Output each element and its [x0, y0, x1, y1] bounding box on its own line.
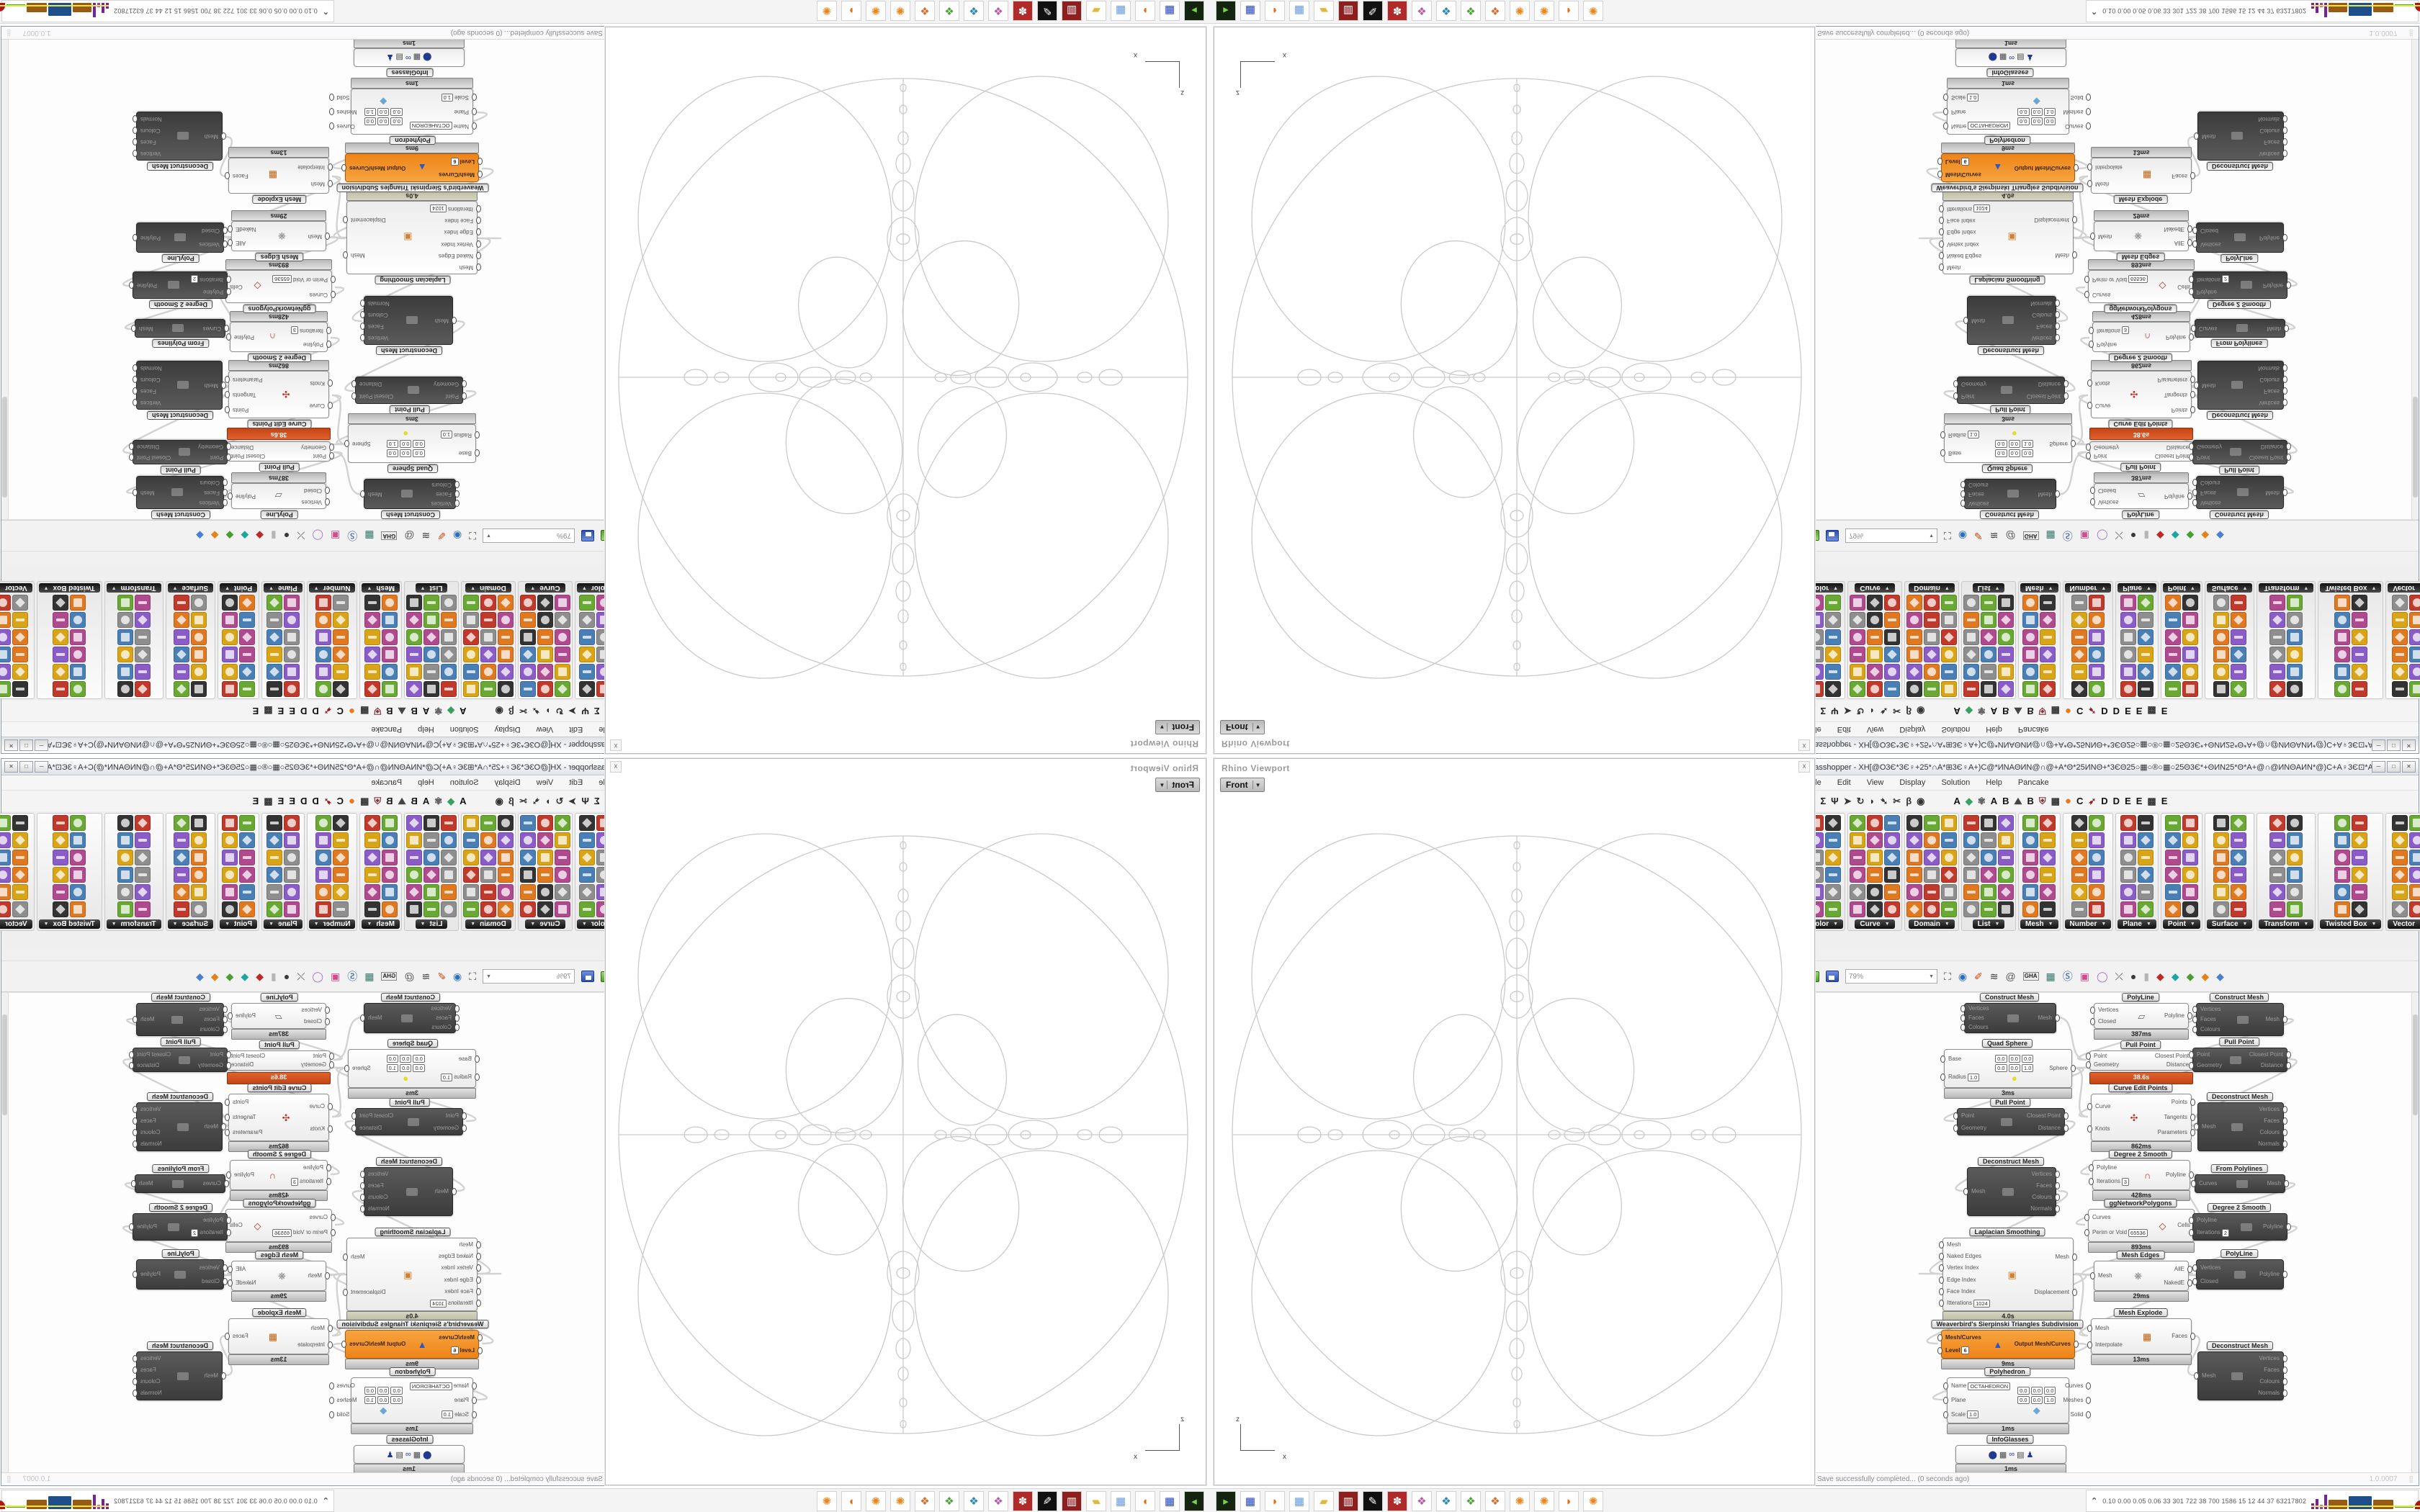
value-box[interactable]: 0.0: [2017, 118, 2029, 126]
input-port[interactable]: [325, 1007, 330, 1014]
component-icon[interactable]: [382, 867, 398, 883]
component-icon[interactable]: [2352, 595, 2367, 611]
component-icon[interactable]: [333, 884, 349, 900]
node-title[interactable]: From Polylines: [2211, 339, 2268, 348]
component-icon[interactable]: [2409, 647, 2420, 662]
ribbon-tab-icon[interactable]: B: [2002, 706, 2009, 716]
graph-node-a1[interactable]: VerticesFacesColoursMesh: [1964, 479, 2056, 509]
component-icon[interactable]: [423, 664, 439, 680]
panel-label-domain[interactable]: Domain▼: [465, 583, 511, 593]
gem-blue-icon[interactable]: ◆: [2216, 531, 2224, 541]
node-title[interactable]: Curve Edit Points: [2108, 1084, 2172, 1092]
component-icon[interactable]: [423, 850, 439, 865]
zoom-select[interactable]: 79% ▼: [1845, 528, 1937, 543]
graph-node-c5[interactable]: PolylineIterations2Polyline: [133, 1213, 228, 1241]
output-port-row[interactable]: Points: [233, 1099, 248, 1106]
input-port[interactable]: [1937, 1347, 1942, 1354]
node-title[interactable]: Laplacian Smoothing: [375, 1228, 450, 1236]
input-port[interactable]: [1939, 1277, 1944, 1284]
component-icon[interactable]: [441, 832, 457, 848]
input-port[interactable]: [226, 1062, 231, 1069]
output-port[interactable]: [2190, 406, 2195, 413]
output-port-row[interactable]: Mesh: [2055, 1254, 2069, 1261]
component-icon[interactable]: [2182, 664, 2198, 680]
input-port[interactable]: [326, 341, 331, 348]
component-icon[interactable]: [1884, 681, 1900, 697]
blender-icon[interactable]: ✺: [1510, 1, 1530, 21]
input-port[interactable]: [2189, 276, 2194, 283]
input-port-row[interactable]: Point: [1961, 1112, 1986, 1120]
node-title[interactable]: Curve Edit Points: [2108, 420, 2172, 428]
input-port-row[interactable]: Geometry: [2197, 1062, 2222, 1069]
minimize-button[interactable]: ─: [2372, 739, 2385, 751]
input-port[interactable]: [2189, 454, 2194, 462]
input-port-row[interactable]: Closed: [2200, 1278, 2220, 1285]
output-port[interactable]: [2187, 492, 2192, 500]
component-icon[interactable]: [239, 815, 255, 831]
component-icon[interactable]: [2287, 595, 2303, 611]
component-icon[interactable]: [480, 867, 496, 883]
node-title[interactable]: Degree 2 Smooth: [248, 354, 311, 362]
panel-label-domain[interactable]: Domain▼: [1909, 583, 1955, 593]
component-icon[interactable]: [555, 629, 570, 645]
input-port-row[interactable]: Point: [198, 454, 223, 462]
component-icon[interactable]: [284, 595, 300, 611]
component-icon[interactable]: [1825, 901, 1841, 917]
component-icon[interactable]: [266, 595, 282, 611]
output-port[interactable]: [329, 94, 334, 101]
component-icon[interactable]: [423, 647, 439, 662]
output-port[interactable]: [2282, 1140, 2287, 1148]
input-port[interactable]: [2089, 1178, 2094, 1185]
component-icon[interactable]: [1825, 595, 1841, 611]
component-icon[interactable]: [2089, 647, 2105, 662]
input-port-row[interactable]: Radius1.0: [441, 431, 472, 438]
graph-node-a1[interactable]: VerticesFacesColoursMesh: [364, 479, 456, 509]
output-port-row[interactable]: Normals: [2030, 300, 2052, 307]
component-icon[interactable]: [2231, 595, 2246, 611]
component-icon[interactable]: [1963, 647, 1979, 662]
ribbon-tab-icon[interactable]: ●: [349, 706, 355, 716]
badge-icon[interactable]: ✽: [1013, 1, 1033, 21]
component-icon[interactable]: [1867, 815, 1883, 831]
value-box[interactable]: 3: [291, 326, 298, 334]
input-port[interactable]: [221, 1123, 226, 1130]
output-port-row[interactable]: Distance: [359, 1125, 382, 1132]
input-port-row[interactable]: Geometry: [1961, 381, 1986, 388]
input-port[interactable]: [328, 164, 333, 171]
component-icon[interactable]: [2165, 681, 2181, 697]
output-port[interactable]: [2190, 1114, 2195, 1121]
component-icon[interactable]: [1906, 901, 1922, 917]
output-port-row[interactable]: Colours: [140, 376, 161, 383]
value-box[interactable]: 65536: [272, 275, 292, 283]
component-icon[interactable]: [2120, 867, 2136, 883]
input-port-row[interactable]: Curve: [310, 402, 325, 410]
node-title[interactable]: Quad Sphere: [387, 464, 438, 473]
component-icon[interactable]: [1867, 612, 1883, 628]
component-icon[interactable]: [315, 664, 331, 680]
ribbon-tab-icon[interactable]: ◆: [447, 796, 454, 806]
component-icon[interactable]: [2231, 884, 2246, 900]
output-port-row[interactable]: Points: [2172, 406, 2187, 413]
node-title[interactable]: ggNetworkPolygons: [243, 305, 315, 313]
component-icon[interactable]: [1981, 629, 1996, 645]
ribbon-tab-icon[interactable]: ↻: [555, 796, 563, 806]
node-title[interactable]: PolyLine: [2122, 993, 2159, 1002]
node-title[interactable]: From Polylines: [153, 339, 210, 348]
component-icon[interactable]: [1941, 884, 1957, 900]
ribbon-tab-icon[interactable]: ▦: [360, 706, 369, 716]
component-icon[interactable]: [2287, 901, 2303, 917]
input-port[interactable]: [2087, 1341, 2092, 1349]
component-icon[interactable]: [364, 681, 380, 697]
component-icon[interactable]: [1884, 850, 1900, 865]
graph-node-a2[interactable]: BaseRadius1.00.00.00.00.00.01.0●Sphere: [1944, 1049, 2072, 1088]
value-box[interactable]: 1024: [1973, 1300, 1990, 1308]
input-port[interactable]: [328, 1341, 333, 1349]
input-port-row[interactable]: Polyline: [2197, 288, 2229, 295]
output-port-row[interactable]: Distance: [231, 1061, 254, 1068]
paint-palette-icon[interactable]: ❖: [939, 1491, 959, 1511]
node-title[interactable]: Deconstruct Mesh: [2207, 162, 2273, 171]
output-port[interactable]: [133, 1129, 138, 1136]
component-icon[interactable]: [1906, 612, 1922, 628]
blender-icon[interactable]: ✺: [1583, 1491, 1603, 1511]
ribbon-tab-icon[interactable]: Ψ: [581, 706, 589, 716]
input-port[interactable]: [2192, 479, 2197, 486]
output-port[interactable]: [351, 381, 357, 388]
component-icon[interactable]: [2089, 595, 2105, 611]
value-box[interactable]: 6: [451, 158, 458, 166]
input-port[interactable]: [329, 444, 334, 451]
component-icon[interactable]: [2231, 629, 2246, 645]
graph-node-c5[interactable]: PolylineIterations2Polyline: [2192, 271, 2287, 299]
balloon-icon[interactable]: ◯: [312, 971, 323, 981]
zoom-select[interactable]: 79% ▼: [483, 528, 575, 543]
component-icon[interactable]: [222, 884, 238, 900]
component-icon[interactable]: [1998, 901, 2014, 917]
component-icon[interactable]: [441, 595, 457, 611]
value-box[interactable]: 0.0: [1995, 450, 2007, 458]
value-box[interactable]: 0.0: [2022, 1055, 2033, 1063]
ribbon-tab-icon[interactable]: ◆: [447, 706, 454, 716]
input-port[interactable]: [328, 380, 333, 387]
output-port[interactable]: [329, 1382, 334, 1390]
component-icon[interactable]: [333, 832, 349, 848]
ribbon-tab-icon[interactable]: ⛨: [374, 706, 381, 716]
cards-icon[interactable]: ▥: [1338, 1491, 1358, 1511]
component-icon[interactable]: [1825, 832, 1841, 848]
search-s-icon[interactable]: Ⓢ: [347, 971, 357, 981]
output-port[interactable]: [133, 1271, 138, 1278]
input-port[interactable]: [1939, 264, 1944, 271]
ribbon-tab-icon[interactable]: B: [2027, 796, 2033, 806]
input-port-row[interactable]: Face Index: [1947, 217, 1990, 224]
menu-item-pancake[interactable]: Pancake: [371, 725, 402, 734]
component-icon[interactable]: [333, 850, 349, 865]
component-icon[interactable]: [2089, 629, 2105, 645]
component-icon[interactable]: [2409, 629, 2420, 645]
output-port-row[interactable]: Closest Point: [137, 1051, 171, 1058]
node-canvas[interactable]: Construct MeshVerticesFacesColoursMeshQu…: [1, 40, 620, 520]
input-port-row[interactable]: Knots: [310, 380, 325, 387]
input-port-row[interactable]: Mesh: [434, 317, 449, 324]
component-icon[interactable]: [555, 647, 570, 662]
component-icon[interactable]: [1906, 884, 1922, 900]
graph-node-a1[interactable]: VerticesFacesColoursMesh: [1964, 1003, 2056, 1033]
node-title[interactable]: Weaverbird's Sierpinski Triangles Subdiv…: [1931, 184, 2083, 192]
output-port-row[interactable]: Faces: [2264, 138, 2280, 145]
component-icon[interactable]: [315, 647, 331, 662]
blender-icon[interactable]: ✺: [890, 1491, 910, 1511]
output-port[interactable]: [225, 1129, 230, 1136]
panel-label-curve[interactable]: Curve▼: [1855, 919, 1894, 929]
value-box[interactable]: 0.0: [1995, 441, 2007, 449]
component-icon[interactable]: [2409, 595, 2420, 611]
node-title[interactable]: Quad Sphere: [1982, 1039, 2033, 1048]
output-port-row[interactable]: AllE: [236, 1266, 246, 1273]
output-port-row[interactable]: Polyline: [2263, 1223, 2283, 1230]
input-port-row[interactable]: Level6: [439, 158, 475, 166]
output-port-row[interactable]: NakedE: [236, 226, 256, 233]
input-port[interactable]: [326, 327, 331, 334]
component-icon[interactable]: [191, 629, 207, 645]
component-icon[interactable]: [135, 664, 151, 680]
gem-red-icon[interactable]: ◆: [2156, 971, 2164, 981]
input-port[interactable]: [472, 1411, 477, 1418]
input-port-row[interactable]: Mesh: [204, 1372, 218, 1380]
component-icon[interactable]: [53, 884, 68, 900]
component-icon[interactable]: [2287, 850, 2303, 865]
component-icon[interactable]: [2392, 612, 2408, 628]
value-box[interactable]: 1.0: [442, 94, 453, 102]
panel-label-plane[interactable]: Plane▼: [264, 919, 302, 929]
ribbon-tab-icon[interactable]: ◉: [496, 796, 503, 806]
output-port[interactable]: [228, 492, 233, 500]
component-icon[interactable]: [2022, 647, 2038, 662]
component-icon[interactable]: [2334, 629, 2350, 645]
input-port[interactable]: [1937, 1334, 1942, 1341]
balloon-icon[interactable]: ◯: [312, 531, 323, 541]
input-port[interactable]: [2189, 1217, 2194, 1224]
component-icon[interactable]: [1884, 664, 1900, 680]
input-port[interactable]: [1960, 1024, 1966, 1031]
component-icon[interactable]: [53, 832, 68, 848]
graph-node-a2[interactable]: BaseRadius1.00.00.00.00.00.01.0●Sphere: [348, 424, 476, 463]
component-icon[interactable]: [2231, 850, 2246, 865]
node-title[interactable]: Deconstruct Mesh: [2207, 411, 2273, 420]
ribbon-tab-icon[interactable]: ●: [349, 796, 355, 806]
output-port[interactable]: [228, 226, 233, 233]
menu-item-edit[interactable]: Edit: [1837, 725, 1851, 734]
ribbon-tab-icon[interactable]: Σ: [1820, 706, 1826, 716]
input-port[interactable]: [325, 498, 330, 505]
output-port-row[interactable]: Tangents: [233, 391, 256, 398]
graph-node-b6[interactable]: Mesh❋AllENakedE: [2094, 221, 2189, 251]
gem-blue-icon[interactable]: ◆: [196, 531, 204, 541]
component-icon[interactable]: [222, 647, 238, 662]
ribbon-tab-icon[interactable]: ◆: [1966, 796, 1973, 806]
output-port[interactable]: [2286, 1223, 2291, 1230]
component-icon[interactable]: [53, 681, 68, 697]
component-icon[interactable]: [2089, 850, 2105, 865]
component-icon[interactable]: [2182, 815, 2198, 831]
component-icon[interactable]: [1963, 867, 1979, 883]
sphere-icon[interactable]: ●: [2130, 971, 2136, 981]
component-icon[interactable]: [239, 647, 255, 662]
ribbon-tab-icon[interactable]: ◗: [545, 706, 551, 716]
sphere-icon[interactable]: ●: [2130, 531, 2136, 541]
component-icon[interactable]: [135, 867, 151, 883]
paint-palette-icon[interactable]: ❖: [1412, 1491, 1432, 1511]
component-icon[interactable]: [2231, 815, 2246, 831]
input-port[interactable]: [2192, 1278, 2197, 1285]
blender-icon[interactable]: ✺: [1510, 1491, 1530, 1511]
component-icon[interactable]: [0, 595, 11, 611]
output-port[interactable]: [2072, 1254, 2077, 1261]
node-title[interactable]: InfoGlasses: [386, 1435, 433, 1444]
component-icon[interactable]: [463, 647, 479, 662]
component-icon[interactable]: [0, 681, 11, 697]
value-box[interactable]: 1024: [430, 1300, 447, 1308]
input-port-row[interactable]: Scale1.0: [410, 1410, 469, 1418]
input-port-row[interactable]: Vertex Index: [430, 240, 473, 248]
output-port-row[interactable]: Faces: [368, 1182, 384, 1189]
node-title[interactable]: Pull Point: [1990, 405, 2030, 414]
component-icon[interactable]: [117, 815, 133, 831]
graph-node-a4[interactable]: MeshVerticesFacesColoursNormals: [1967, 296, 2056, 345]
input-port[interactable]: [2089, 1164, 2094, 1171]
chevron-up-icon[interactable]: ⌃: [2091, 1496, 2097, 1506]
component-icon[interactable]: [284, 629, 300, 645]
cylinder-icon[interactable]: ▮: [271, 971, 277, 981]
output-port-row[interactable]: Polyline: [137, 282, 157, 289]
node-title[interactable]: Mesh Explode: [2114, 195, 2168, 204]
value-box[interactable]: 1.0: [2044, 1396, 2056, 1404]
node-title[interactable]: Deconstruct Mesh: [147, 1092, 213, 1101]
node-title[interactable]: InfoGlasses: [1986, 68, 2033, 77]
input-port-row[interactable]: Naked Edges: [1947, 252, 1990, 259]
cards-icon[interactable]: ▥: [1062, 1, 1082, 21]
input-port-row[interactable]: Mesh: [2095, 1325, 2123, 1332]
component-icon[interactable]: [1825, 612, 1841, 628]
component-icon[interactable]: [1924, 850, 1940, 865]
output-port-row[interactable]: Vertices: [368, 1171, 388, 1178]
ribbon-tab-icon[interactable]: D: [312, 796, 318, 806]
menu-item-edit[interactable]: Edit: [1837, 778, 1851, 787]
input-port[interactable]: [2086, 452, 2091, 459]
component-icon[interactable]: [382, 664, 398, 680]
component-icon[interactable]: [1850, 832, 1865, 848]
output-port-row[interactable]: Curves: [337, 122, 355, 130]
input-port[interactable]: [472, 94, 477, 101]
input-port[interactable]: [224, 1180, 229, 1187]
panel-label-twisted-box[interactable]: Twisted Box▼: [39, 583, 100, 593]
input-port[interactable]: [223, 1278, 228, 1285]
gem-teal-icon[interactable]: ◆: [2172, 531, 2179, 541]
input-port[interactable]: [221, 132, 226, 140]
input-port-row[interactable]: Vertices: [302, 1007, 322, 1014]
node-title[interactable]: Laplacian Smoothing: [375, 276, 450, 284]
output-port[interactable]: [360, 311, 365, 318]
panel-label-mesh[interactable]: Mesh▼: [2020, 919, 2058, 929]
value-box[interactable]: 0.0: [2031, 109, 2043, 117]
input-port-row[interactable]: Vertices: [2200, 499, 2220, 506]
node-title[interactable]: Degree 2 Smooth: [248, 1150, 311, 1158]
value-box[interactable]: 1.0: [441, 431, 452, 438]
node-title[interactable]: PolyLine: [2220, 1249, 2258, 1258]
component-icon[interactable]: [1941, 612, 1957, 628]
ribbon-tab-icon[interactable]: ✂: [1893, 796, 1901, 806]
output-port-row[interactable]: Faces: [140, 1117, 156, 1125]
chevron-up-icon[interactable]: ⌃: [323, 6, 329, 16]
output-port-row[interactable]: Solid: [337, 1411, 350, 1418]
component-icon[interactable]: [441, 815, 457, 831]
input-port[interactable]: [221, 382, 226, 389]
output-port-row[interactable]: Curves: [2065, 1382, 2083, 1390]
graph-node-a2[interactable]: BaseRadius1.00.00.00.00.00.01.0●Sphere: [1944, 424, 2072, 463]
component-icon[interactable]: [1941, 901, 1957, 917]
input-port-row[interactable]: Vertices: [431, 1005, 452, 1012]
component-icon[interactable]: [2352, 884, 2367, 900]
input-port[interactable]: [326, 1178, 331, 1185]
value-box[interactable]: 0.0: [364, 1387, 376, 1395]
input-port[interactable]: [329, 1061, 334, 1068]
ribbon-tab-icon[interactable]: ↻: [1857, 796, 1865, 806]
component-icon[interactable]: [12, 595, 28, 611]
component-icon[interactable]: [1998, 815, 2014, 831]
output-port[interactable]: [2282, 150, 2287, 157]
value-box[interactable]: 1.0: [1967, 1410, 1978, 1418]
output-port[interactable]: [129, 1223, 134, 1230]
value-box[interactable]: 0.0: [400, 1055, 411, 1063]
component-icon[interactable]: [2213, 647, 2229, 662]
component-icon[interactable]: [1850, 612, 1865, 628]
component-icon[interactable]: [1867, 867, 1883, 883]
component-icon[interactable]: [2071, 681, 2087, 697]
ribbon-tab-icon[interactable]: C: [2076, 796, 2083, 806]
output-port-row[interactable]: Output Mesh/Curves: [2015, 1341, 2071, 1348]
value-box[interactable]: 65536: [272, 1229, 292, 1237]
component-icon[interactable]: [2138, 901, 2154, 917]
graph-node-c3[interactable]: MeshVerticesFacesColoursNormals: [2197, 361, 2284, 410]
component-icon[interactable]: [2138, 832, 2154, 848]
component-icon[interactable]: [2269, 867, 2285, 883]
graph-node-c3[interactable]: MeshVerticesFacesColoursNormals: [136, 1102, 223, 1151]
input-port[interactable]: [475, 1056, 480, 1063]
node-title[interactable]: PolyLine: [162, 254, 200, 263]
component-icon[interactable]: [70, 867, 86, 883]
component-icon[interactable]: [537, 681, 553, 697]
component-icon[interactable]: [2089, 664, 2105, 680]
output-port-row[interactable]: NakedE: [236, 1279, 256, 1287]
graph-node-a7[interactable]: NameOCTAHEDRONPlaneScale1.00.00.00.00.00…: [351, 1377, 473, 1423]
component-icon[interactable]: [2269, 595, 2285, 611]
input-port[interactable]: [2084, 1214, 2089, 1221]
resize-grip-icon[interactable]: ⣿: [2408, 29, 2414, 37]
component-icon[interactable]: [1884, 901, 1900, 917]
input-port[interactable]: [472, 108, 477, 115]
input-port-row[interactable]: Vertices: [200, 1006, 220, 1013]
value-box[interactable]: 0.0: [2017, 109, 2029, 117]
component-icon[interactable]: [222, 629, 238, 645]
input-port[interactable]: [476, 1288, 481, 1295]
input-port[interactable]: [223, 499, 228, 506]
input-port[interactable]: [454, 500, 460, 507]
component-icon[interactable]: [2089, 867, 2105, 883]
output-port[interactable]: [2286, 454, 2291, 462]
